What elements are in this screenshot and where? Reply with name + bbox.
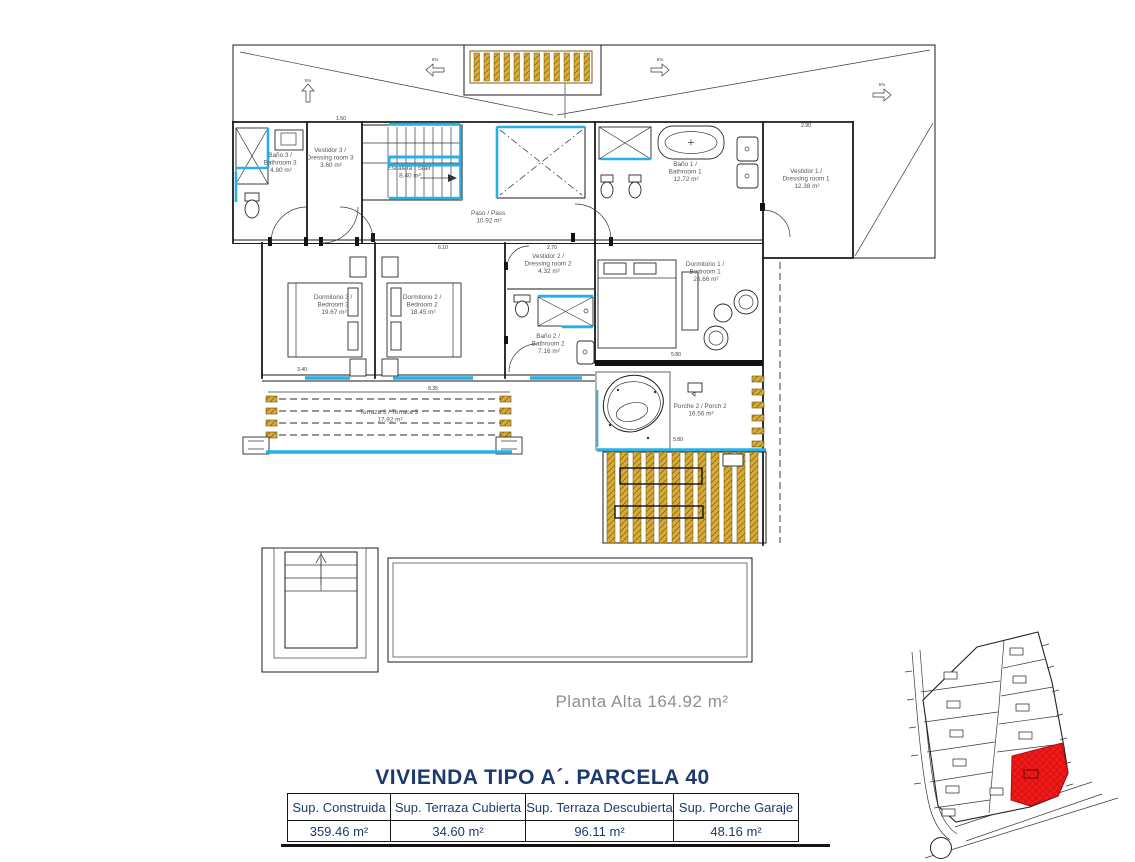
sink-icon [737,164,758,188]
armchair-icon [734,290,758,314]
lower-floor-outline [262,548,752,672]
dim-label: 5.80 [671,352,681,358]
col-header-terraza-cubierta: Sup. Terraza Cubierta [391,794,526,821]
areas-table-value-row: 359.46 m² 34.60 m² 96.11 m² 48.16 m² [288,821,799,842]
room-label-paso: Paso / Pass 10.92 m² [471,210,507,225]
toilet-icon [514,295,530,317]
nightstand-icon [382,257,398,277]
nightstand-icon [382,359,398,376]
toilet-icon [601,175,613,198]
skylight-louvers-icon [470,51,592,83]
floor-caption: Planta Alta 164.92 m² [442,692,842,712]
slope-label: 5% [879,82,886,87]
site-plan-minimap [905,632,1118,859]
terrace-post [243,437,269,454]
bathtub-icon [658,126,724,159]
areas-table-header-row: Sup. Construida Sup. Terraza Cubierta Su… [288,794,799,821]
armchair-icon [704,326,728,350]
room-label-vest3: Vestidor 3 / Dressing room 3 3.60 m² [307,147,356,169]
ceiling-fan-icon [688,383,702,396]
jacuzzi-icon [603,375,663,439]
room-label-vest2: Vestidor 2 / Dressing room 2 4.32 m² [525,253,574,275]
room-label-porch2: Porche 2 / Porch 2 16.56 m² [674,403,729,418]
room-label-bath1: Baño 1 / Bathroom 1 12.72 m² [669,161,704,183]
wood-deck [597,450,766,543]
drawing-sheet: 5% 5% 5% 5% [0,0,1135,862]
nightstand-icon [350,359,366,376]
col-header-sup-construida: Sup. Construida [288,794,391,821]
roof-slope-arrow-icon: 5% [873,82,891,101]
bedroom-3-furniture [288,257,366,376]
value-terraza-cubierta: 34.60 m² [391,821,526,842]
room-label-bath3: Baño 3 / Bathroom 3 4.80 m² [264,152,299,174]
dim-label: 5.80 [673,437,683,443]
bidet-icon [629,175,641,198]
areas-table: Sup. Construida Sup. Terraza Cubierta Su… [287,793,799,842]
room-label-vest1: Vestidor 1 / Dressing room 1 12.38 m² [783,168,832,190]
sink-icon [737,137,758,161]
bedroom-2-furniture [382,257,461,376]
slope-label: 5% [432,57,439,62]
dim-label: 8.35 [428,386,438,392]
pillow-icon [634,263,656,274]
room-label-terrace3: Terraza 3 / Terrace 3 17.92 m² [360,409,420,424]
toilet-icon [245,193,259,218]
nightstand-icon [350,257,366,277]
sink-icon [577,341,594,364]
dim-label: 6.10 [438,245,448,251]
dim-label: 2.70 [547,245,557,251]
sheet-frame-line [281,844,830,847]
floor-plan-svg: 5% 5% 5% 5% [0,0,1135,862]
dim-label: 1.50 [336,116,346,122]
pillow-icon [348,322,358,350]
slope-label: 5% [305,78,312,83]
pillow-icon [391,288,401,316]
value-sup-construida: 359.46 m² [288,821,391,842]
col-header-porche-garaje: Sup. Porche Garaje [674,794,799,821]
slope-label: 5% [657,57,664,62]
roof-slope-arrow-icon: 5% [302,78,314,102]
bedroom-1-furniture [598,260,758,350]
room-label-stair: Escalera / Stair 8.40 m² [387,165,432,180]
staircase [362,124,462,200]
drawing-title: VIVIENDA TIPO A´. PARCELA 40 [270,766,815,790]
pillow-icon [391,322,401,350]
stair-direction-arrow-icon [448,174,457,182]
value-terraza-descubierta: 96.11 m² [526,821,674,842]
roof-slope-arrow-icon: 5% [426,57,444,76]
value-porche-garaje: 48.16 m² [674,821,799,842]
roof-slope-arrow-icon: 5% [651,57,669,76]
dim-label: 2.90 [801,123,811,129]
col-header-terraza-descubierta: Sup. Terraza Descubierta [526,794,674,821]
roundabout-icon [931,838,952,859]
double-height-void [497,127,585,198]
dim-label: 3.40 [297,367,307,373]
pillow-icon [604,263,626,274]
wall-fill [595,360,763,366]
room-label-bath2: Baño 2 / Bathroom 2 7.16 m² [532,333,567,355]
side-table-icon [714,304,732,322]
